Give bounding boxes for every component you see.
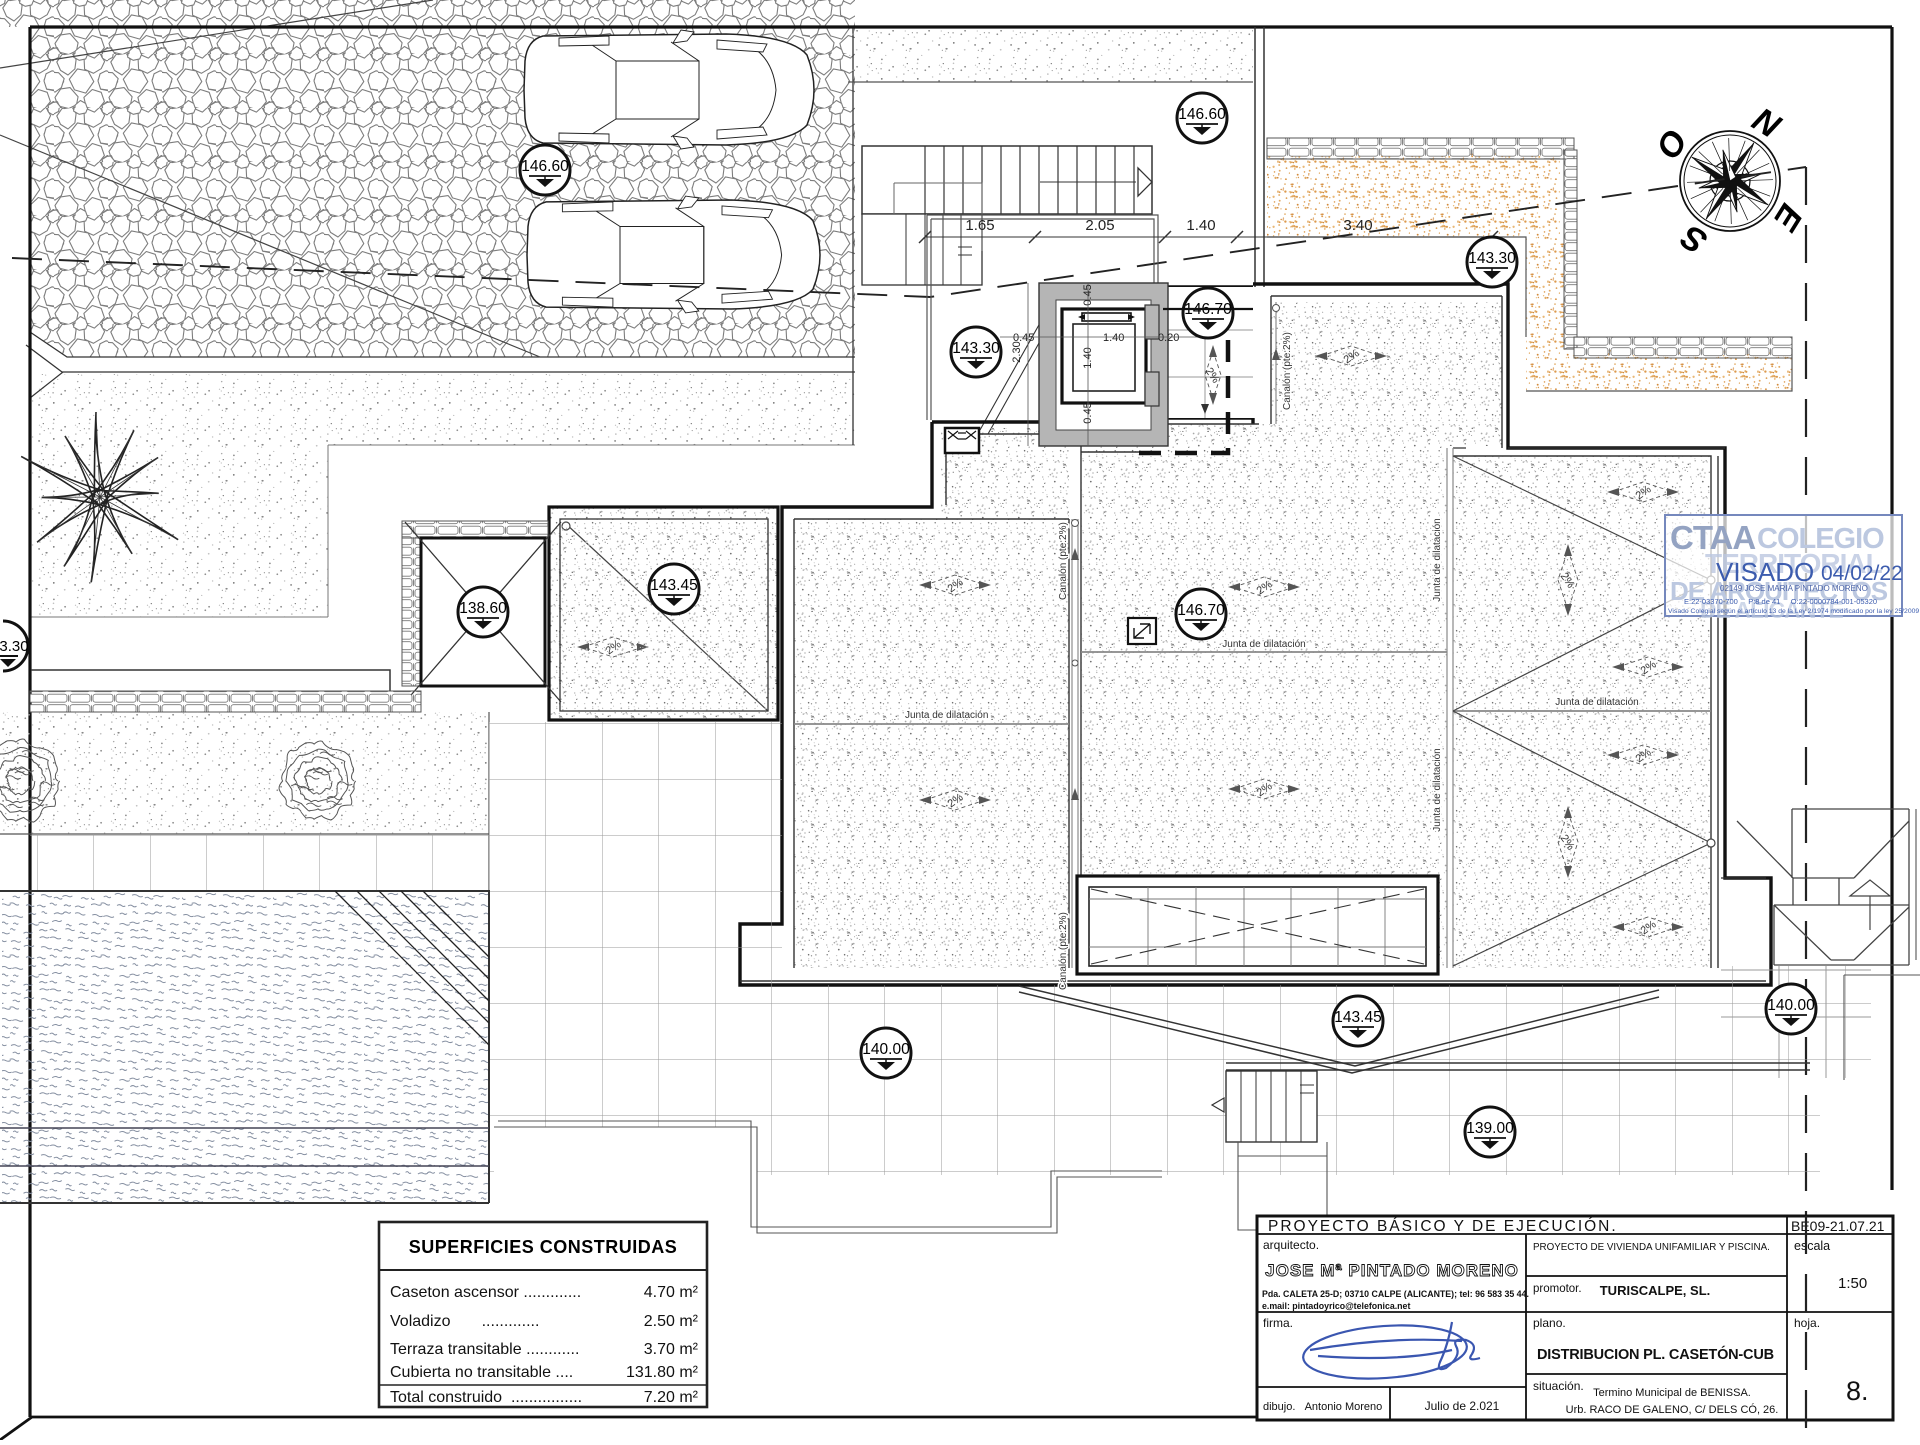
svg-text:2.05: 2.05 <box>1085 217 1114 234</box>
svg-text:Terraza transitable ..........: Terraza transitable ............ <box>390 1341 579 1358</box>
svg-text:1.65: 1.65 <box>965 217 994 234</box>
svg-text:0.20: 0.20 <box>1158 332 1179 344</box>
svg-text:146.60: 146.60 <box>521 158 569 175</box>
svg-text:hoja.: hoja. <box>1794 1316 1820 1330</box>
svg-text:140.00: 140.00 <box>1767 997 1815 1014</box>
svg-text:Junta de dilatación: Junta de dilatación <box>1555 697 1638 708</box>
svg-text:PROYECTO DE VIVIENDA UNIFAM: PROYECTO DE VIVIENDA UNIFAMILIAR Y PISCI… <box>1533 1242 1770 1253</box>
svg-text:4.70 m²: 4.70 m² <box>644 1284 699 1301</box>
svg-text:04/02/22: 04/02/22 <box>1821 562 1903 585</box>
svg-text:Visado Colegial según el artíc: Visado Colegial según el artículo 13 de … <box>1668 608 1919 615</box>
svg-text:3.40: 3.40 <box>1343 217 1372 234</box>
svg-text:Junta de dilatación: Junta de dilatación <box>905 710 988 721</box>
svg-text:0.45: 0.45 <box>1013 332 1034 344</box>
svg-text:escala: escala <box>1794 1239 1830 1253</box>
svg-text:firma.: firma. <box>1263 1316 1293 1330</box>
svg-text:1.40: 1.40 <box>1103 332 1124 344</box>
svg-text:143.30: 143.30 <box>1468 250 1516 267</box>
svg-text:dibujo. Antonio Moreno: dibujo. Antonio Moreno <box>1263 1401 1382 1413</box>
svg-text:VISADO: VISADO <box>1716 557 1814 587</box>
svg-text:2.50 m²: 2.50 m² <box>644 1313 699 1330</box>
svg-text:Urb. RACO DE GALENO, C/ D: Urb. RACO DE GALENO, C/ DELS CÓ, 26. <box>1566 1403 1779 1416</box>
svg-text:TURISCALPE, SL.: TURISCALPE, SL. <box>1600 1283 1711 1298</box>
svg-text:3.30: 3.30 <box>0 638 29 655</box>
svg-text:139.00: 139.00 <box>1466 1120 1514 1137</box>
svg-text:JOSE Mª PINTADO MORENO: JOSE Mª PINTADO MORENO <box>1265 1261 1519 1280</box>
svg-text:Voladizo .............: Voladizo ............. <box>390 1313 539 1330</box>
svg-text:Cubierta no transitable ....: Cubierta no transitable .... <box>390 1364 573 1381</box>
svg-text:e.mail: pintadoyrico@telefonic: e.mail: pintadoyrico@telefonica.net <box>1262 1301 1410 1311</box>
svg-text:situación.: situación. <box>1533 1379 1584 1393</box>
svg-text:Total construido ............: Total construido ................ <box>390 1389 582 1406</box>
svg-text:Canalón (pte:2%): Canalón (pte:2%) <box>1282 332 1293 410</box>
svg-text:1:50: 1:50 <box>1838 1275 1867 1292</box>
svg-text:DISTRIBUCION PL. CASETÓN-CUB: DISTRIBUCION PL. CASETÓN-CUB <box>1537 1345 1774 1363</box>
svg-text:arquitecto.: arquitecto. <box>1263 1238 1319 1252</box>
svg-text:promotor.: promotor. <box>1533 1283 1582 1295</box>
svg-text:SUPERFICIES CONSTRUIDAS: SUPERFICIES CONSTRUIDAS <box>409 1237 678 1257</box>
svg-text:02149 JOSE MARIA PINTADO MOREN: 02149 JOSE MARIA PINTADO MORENO <box>1720 584 1868 593</box>
svg-text:138.60: 138.60 <box>459 600 507 617</box>
svg-text:Julio de 2.021: Julio de 2.021 <box>1425 1399 1500 1413</box>
svg-text:PROYECTO BÁSICO Y DE EJECU: PROYECTO BÁSICO Y DE EJECUCIÓN. <box>1268 1218 1618 1235</box>
svg-text:Junta de dilatación: Junta de dilatación <box>1222 639 1305 650</box>
svg-text:131.80 m²: 131.80 m² <box>626 1364 699 1381</box>
svg-text:E:22-03370-700 P:8 de 41: E:22-03370-700 P:8 de 41 O:22-0000784-00… <box>1684 597 1877 606</box>
svg-text:143.45: 143.45 <box>650 577 697 594</box>
svg-text:Termino Municipal de BENISS: Termino Municipal de BENISSA. <box>1593 1387 1751 1399</box>
svg-text:143.45: 143.45 <box>1334 1009 1381 1026</box>
svg-text:Junta de dilatación: Junta de dilatación <box>1432 748 1443 831</box>
svg-text:Pda. CALETA 25-D; 03710 CALPE: Pda. CALETA 25-D; 03710 CALPE (ALICANTE)… <box>1262 1289 1529 1299</box>
svg-text:Junta de dilatación: Junta de dilatación <box>1432 518 1443 601</box>
svg-text:Caseton ascensor .............: Caseton ascensor ............. <box>390 1284 581 1301</box>
svg-text:3.70 m²: 3.70 m² <box>644 1341 699 1358</box>
svg-text:146.60: 146.60 <box>1178 106 1226 123</box>
svg-text:8.: 8. <box>1846 1376 1869 1406</box>
svg-text:7.20 m²: 7.20 m² <box>644 1389 699 1406</box>
svg-text:146.70: 146.70 <box>1177 602 1225 619</box>
svg-text:143.30: 143.30 <box>952 340 1000 357</box>
svg-text:Canalón (pte:2%): Canalón (pte:2%) <box>1058 522 1069 600</box>
svg-text:plano.: plano. <box>1533 1316 1566 1330</box>
svg-text:140.00: 140.00 <box>862 1041 910 1058</box>
svg-text:1.40: 1.40 <box>1186 217 1215 234</box>
svg-text:2.30: 2.30 <box>1011 341 1023 362</box>
svg-text:Canalón (pte:2%): Canalón (pte:2%) <box>1058 912 1069 990</box>
